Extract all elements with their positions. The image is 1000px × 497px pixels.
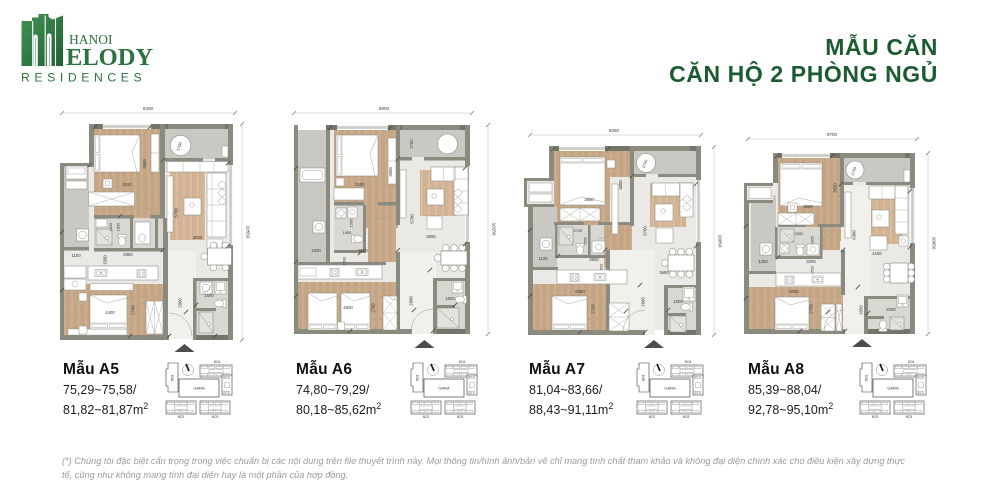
svg-text:1650: 1650 [811,236,815,244]
svg-text:10050: 10050 [718,235,723,248]
svg-text:NO2: NO2 [178,415,185,419]
svg-text:10250: 10250 [492,223,497,236]
svg-text:NO1: NO1 [642,375,646,382]
svg-text:3650: 3650 [833,183,838,193]
svg-text:1950: 1950 [343,230,352,235]
svg-text:NO2: NO2 [872,415,879,419]
svg-text:2800: 2800 [409,296,414,306]
svg-text:NO4: NO4 [214,360,221,364]
svg-text:2800: 2800 [178,298,183,308]
svg-text:1500: 1500 [584,237,588,245]
svg-text:NO3: NO3 [457,415,464,419]
svg-text:5700: 5700 [174,208,179,218]
svg-text:2050: 2050 [859,305,864,315]
svg-text:GARA: GARA [664,386,676,391]
svg-text:3600: 3600 [803,204,813,209]
svg-text:1250: 1250 [758,259,768,264]
svg-text:2750: 2750 [591,304,596,314]
svg-text:5700: 5700 [410,214,415,224]
svg-text:2700: 2700 [131,305,136,315]
svg-text:2700: 2700 [371,303,376,313]
svg-text:4800: 4800 [343,305,353,310]
svg-text:2800: 2800 [641,297,646,307]
svg-text:NO3: NO3 [906,415,913,419]
svg-text:3650: 3650 [426,234,436,239]
svg-text:9350: 9350 [609,128,620,133]
svg-text:1500: 1500 [445,296,455,301]
svg-text:8400: 8400 [143,106,154,111]
svg-text:NO3: NO3 [683,415,690,419]
svg-text:2750: 2750 [809,304,814,314]
svg-text:3200: 3200 [806,259,816,264]
svg-text:10050: 10050 [932,237,937,250]
svg-text:5700: 5700 [643,226,648,236]
svg-text:NO3: NO3 [212,415,219,419]
svg-text:3150: 3150 [122,182,132,187]
svg-text:NO4: NO4 [908,360,915,364]
svg-text:3100: 3100 [355,182,365,187]
svg-text:NO1: NO1 [171,375,175,382]
svg-text:2700: 2700 [574,228,583,233]
svg-text:NO1: NO1 [865,375,869,382]
svg-text:5050: 5050 [575,289,585,294]
svg-text:NO1: NO1 [416,375,420,382]
svg-text:ELODY: ELODY [66,44,153,71]
svg-text:1500: 1500 [311,248,321,253]
svg-text:2500: 2500 [795,231,804,236]
svg-text:1550: 1550 [349,218,354,227]
svg-text:GARA: GARA [887,386,899,391]
svg-text:3650: 3650 [388,167,393,177]
svg-text:6300: 6300 [852,230,857,240]
svg-text:1700: 1700 [409,139,414,149]
svg-text:3050: 3050 [193,235,203,240]
svg-text:10550: 10550 [246,226,251,239]
svg-text:3650: 3650 [659,270,669,275]
svg-text:1500: 1500 [103,255,108,265]
svg-text:4400: 4400 [105,310,115,315]
svg-text:1500: 1500 [204,293,214,298]
svg-text:1850: 1850 [108,222,113,231]
svg-text:4000: 4000 [618,180,623,190]
svg-text:1850: 1850 [116,222,121,231]
svg-text:4150: 4150 [872,251,882,256]
svg-text:NO4: NO4 [685,360,692,364]
svg-text:1500: 1500 [342,256,347,265]
svg-text:1500: 1500 [811,266,815,274]
svg-text:GARA: GARA [438,386,450,391]
svg-text:9700: 9700 [827,132,838,137]
svg-text:3850: 3850 [584,197,594,202]
svg-text:2000: 2000 [886,307,896,312]
svg-text:2950: 2950 [123,252,133,257]
svg-text:1100: 1100 [71,253,81,258]
svg-text:1500: 1500 [673,299,683,304]
svg-text:RESIDENCES: RESIDENCES [21,71,146,85]
svg-text:8900: 8900 [379,106,390,111]
svg-text:NO2: NO2 [649,415,656,419]
svg-text:NO2: NO2 [423,415,430,419]
svg-text:NO4: NO4 [459,360,466,364]
svg-text:2900: 2900 [358,248,368,253]
svg-text:500: 500 [600,264,604,270]
svg-text:5000: 5000 [789,289,799,294]
svg-text:3650: 3650 [142,159,147,169]
svg-text:3600: 3600 [589,257,599,262]
svg-text:1100: 1100 [538,256,548,261]
svg-text:GARA: GARA [193,386,205,391]
